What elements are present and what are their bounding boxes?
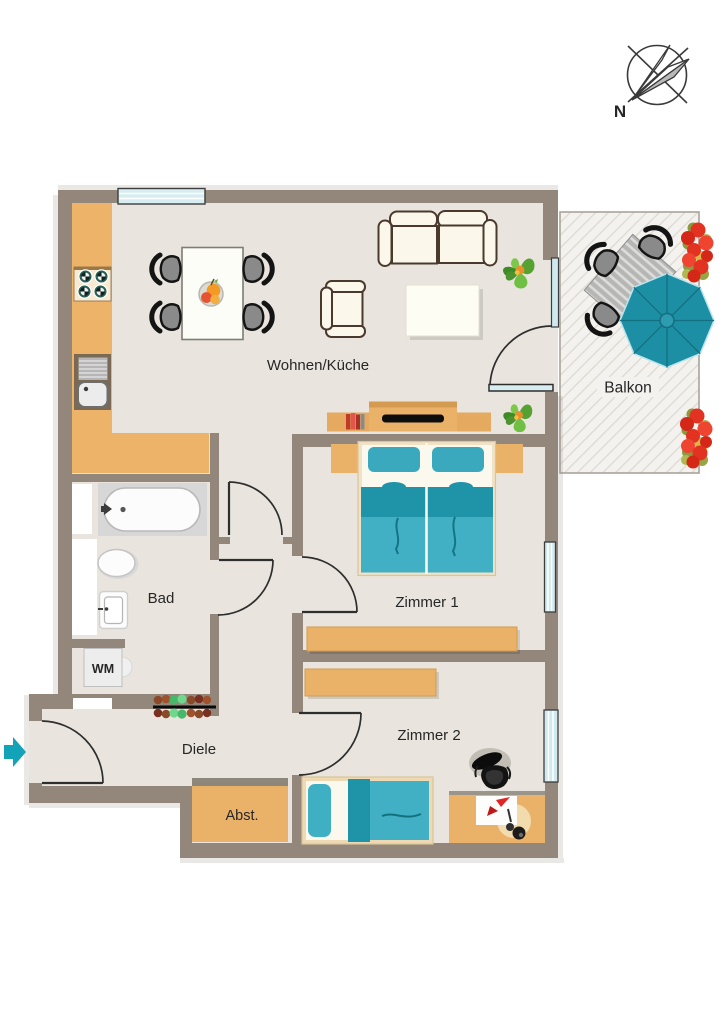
svg-text:WM: WM [92,662,114,676]
svg-text:Zimmer 2: Zimmer 2 [397,727,460,744]
svg-text:Balkon: Balkon [604,380,651,397]
svg-text:Wohnen/Küche: Wohnen/Küche [267,357,369,374]
svg-text:Abst.: Abst. [225,808,258,824]
svg-text:N: N [614,102,626,121]
svg-text:Diele: Diele [182,741,216,758]
svg-text:Zimmer 1: Zimmer 1 [395,594,458,611]
svg-text:Bad: Bad [148,590,175,607]
